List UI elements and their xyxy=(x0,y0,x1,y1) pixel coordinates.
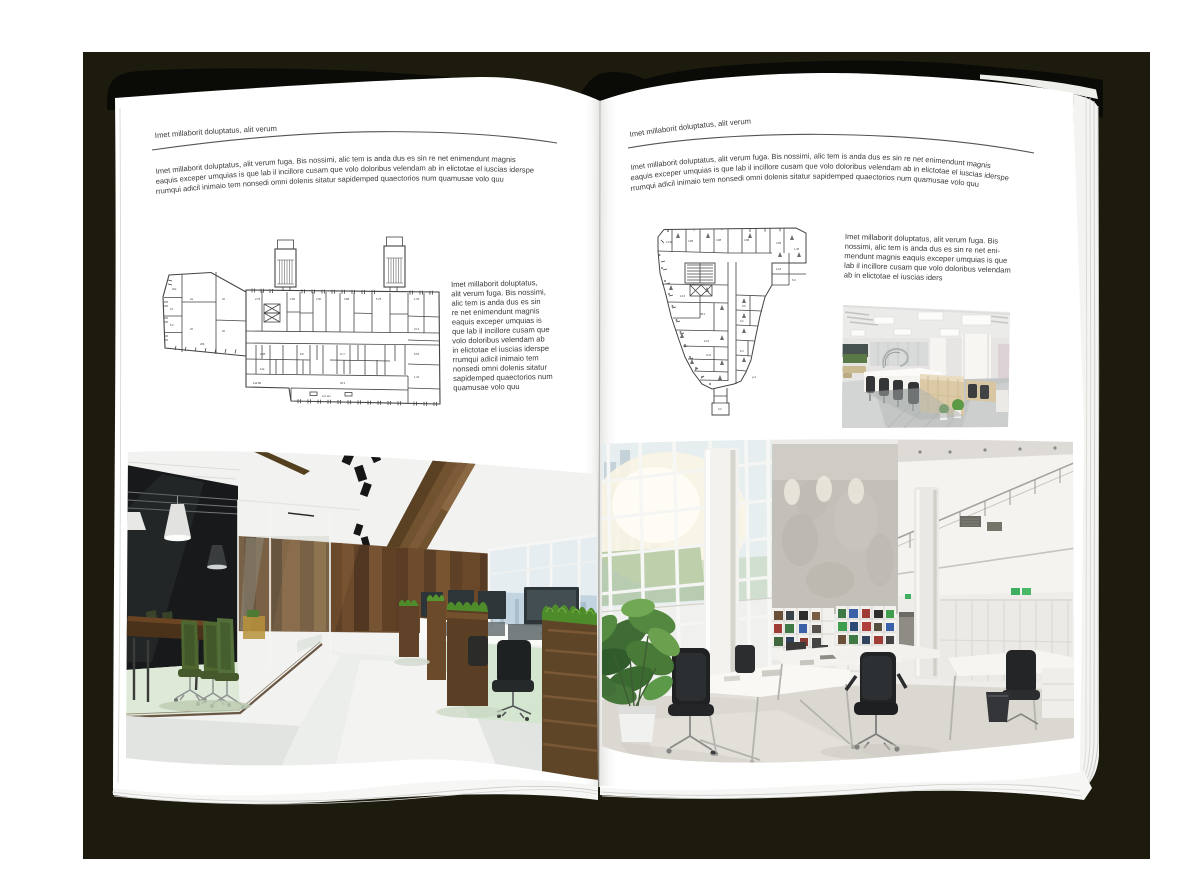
svg-text:5.54: 5.54 xyxy=(414,352,420,356)
svg-text:142.88: 142.88 xyxy=(253,381,261,385)
svg-text:2.78: 2.78 xyxy=(255,297,261,301)
svg-text:2.90: 2.90 xyxy=(316,297,322,301)
svg-text:1.43: 1.43 xyxy=(414,375,420,379)
svg-text:38.2: 38.2 xyxy=(700,312,706,316)
svg-text:5.2: 5.2 xyxy=(170,323,174,327)
svg-text:4.85: 4.85 xyxy=(688,239,694,243)
svg-text:46.3: 46.3 xyxy=(340,381,346,385)
svg-text:3.2: 3.2 xyxy=(718,407,722,411)
svg-text:206: 206 xyxy=(200,342,205,346)
svg-text:2.38: 2.38 xyxy=(260,352,266,356)
svg-text:1.45: 1.45 xyxy=(794,247,800,251)
svg-text:12.96: 12.96 xyxy=(666,240,673,244)
svg-text:3.88: 3.88 xyxy=(344,297,350,301)
svg-text:11.8: 11.8 xyxy=(706,353,711,357)
svg-text:4.88: 4.88 xyxy=(716,238,722,242)
svg-text:14.6: 14.6 xyxy=(680,294,686,298)
svg-text:20а: 20а xyxy=(172,287,177,291)
svg-text:9.6: 9.6 xyxy=(742,304,746,308)
svg-text:2-й зал: 2-й зал xyxy=(322,394,331,398)
svg-text:4.85: 4.85 xyxy=(776,241,782,245)
svg-text:11.7: 11.7 xyxy=(340,352,345,356)
svg-text:12.5: 12.5 xyxy=(704,339,710,343)
svg-text:2б: 2б xyxy=(190,327,193,331)
svg-text:усл: усл xyxy=(752,376,757,379)
svg-text:4.88: 4.88 xyxy=(744,238,750,242)
svg-text:12.8: 12.8 xyxy=(776,267,782,271)
svg-text:2.80: 2.80 xyxy=(290,297,296,301)
svg-text:8.4: 8.4 xyxy=(740,349,744,353)
svg-text:5.78: 5.78 xyxy=(376,297,382,301)
svg-text:6.9: 6.9 xyxy=(792,278,796,282)
svg-text:9.2: 9.2 xyxy=(740,319,744,323)
svg-text:10.2: 10.2 xyxy=(414,327,420,331)
svg-text:8.8: 8.8 xyxy=(300,352,304,356)
svg-text:12а: 12а xyxy=(260,367,265,371)
svg-text:quamusae volo quu: quamusae volo quu xyxy=(453,382,519,392)
svg-text:1.45: 1.45 xyxy=(414,297,420,301)
